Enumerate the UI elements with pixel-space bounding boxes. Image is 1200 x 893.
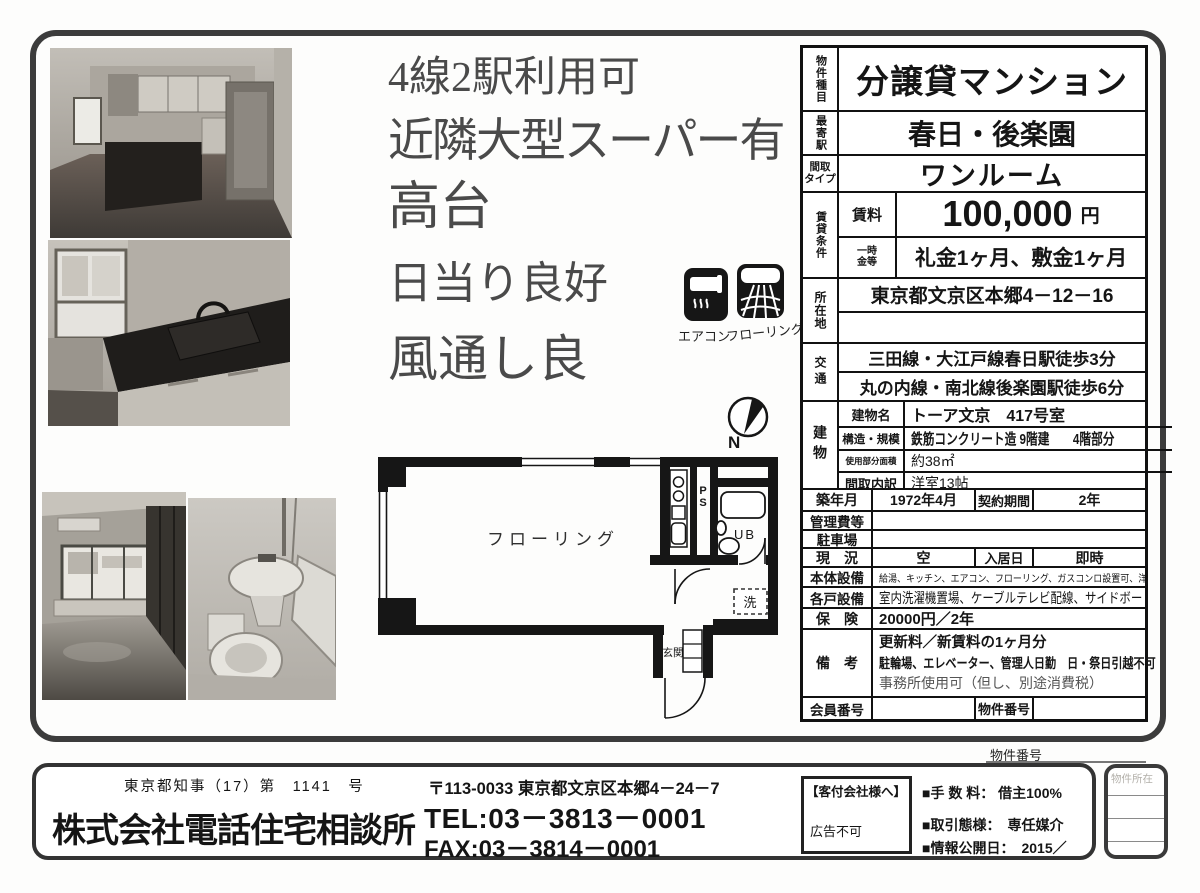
member-no-label: 会員番号	[810, 699, 864, 719]
row-location: 所在地 東京都文京区本郷4－12－16	[803, 279, 1145, 344]
row-property-type: 物件種目 分譲貸マンション	[803, 48, 1145, 112]
member-no-value	[873, 698, 976, 719]
floorplan: N フローリング P S UB 洗 玄関	[372, 392, 790, 722]
location-value: 東京都文京区本郷4－12－16	[839, 279, 1145, 313]
unit-equipment-value: 室内洗濯機置場、ケーブルテレビ配線、サイドボード	[879, 588, 1145, 607]
floor-area-value: 約38㎡	[911, 451, 955, 471]
license-number: 東京都知事（17）第 1141 号	[124, 775, 365, 796]
structure-label: 構造・規模	[842, 431, 900, 447]
row-access: 交通 三田線・大江戸線春日駅徒歩3分 丸の内線・南北線後楽園駅徒歩6分	[803, 344, 1145, 402]
row-rental-terms: 賃貸条件 賃料 100,000 円 一時 金等 礼金1ヶ月、敷金1ヶ月	[803, 193, 1145, 279]
property-no-label: 物件番号	[978, 699, 1030, 718]
row-insurance: 保 険 20000円／2年	[803, 609, 1145, 630]
agent-notice-box: 【客付会社様へ】 広告不可	[801, 776, 912, 854]
floor-area-label: 使用部分面積	[845, 455, 896, 467]
parking-label: 駐車場	[817, 529, 858, 549]
property-location-stamp-box: 物件所在	[1104, 764, 1168, 859]
property-type-value: 分譲貸マンション	[839, 48, 1145, 110]
structure-value: 鉄筋コンクリート造 9階建 4階部分	[911, 428, 1114, 449]
floorplan-ps-label-2: S	[699, 497, 706, 509]
notes-line-3: 事務所使用可（但し、別途消費税）	[879, 673, 1200, 693]
row-unit-equipment: 各戸設備 室内洗濯機置場、ケーブルテレビ配線、サイドボード	[803, 588, 1145, 609]
agent-box-note: 広告不可	[810, 821, 862, 840]
notes-line-2: 駐輪場、エレベーター、管理人日勤 日・祭日引越不可	[879, 654, 1156, 674]
fee-note: ■手 数 料： 借主100%	[922, 783, 1062, 803]
catch-line-3: 高台	[388, 182, 492, 234]
rent-value: 100,000	[942, 193, 1072, 235]
nearest-station-label: 最寄駅	[815, 115, 826, 151]
management-fee-label: 管理費等	[810, 511, 864, 531]
photo-room-kitchen	[50, 48, 292, 238]
photo-kitchen-sink	[48, 240, 290, 426]
row-notes: 備 考 更新料／新賃料の1ヶ月分 駐輪場、エレベーター、管理人日勤 日・祭日引越…	[803, 630, 1145, 698]
photo-bathroom	[188, 498, 336, 700]
access-line-1: 三田線・大江戸線春日駅徒歩3分	[839, 344, 1145, 373]
notes-line-1: 更新料／新賃料の1ヶ月分	[879, 633, 1200, 654]
publish-date: ■情報公開日： 2015／	[922, 838, 1067, 858]
layout-type-label-1: 間取	[810, 162, 831, 174]
built-date-label: 築年月	[816, 490, 858, 510]
floorplan-washer-label: 洗	[743, 595, 756, 610]
floorplan-entrance-label: 玄関	[663, 646, 684, 659]
contract-term-label: 契約期間	[978, 491, 1030, 510]
parking-value	[873, 531, 1145, 547]
floorplan-room-label: フローリング	[487, 530, 619, 549]
compass-n-label: N	[728, 433, 740, 452]
company-address: 〒113-0033 東京都文京区本郷4－24－7	[428, 775, 720, 799]
catch-line-2: 近隣大型スーパー有	[388, 118, 784, 164]
main-equipment-label: 本体設備	[810, 567, 864, 587]
row-status: 現 況 空 入居日 即時	[803, 549, 1145, 568]
status-label: 現 況	[816, 548, 858, 568]
photo-room-window	[42, 492, 186, 700]
management-fee-value	[873, 512, 1145, 529]
agent-box-title: 【客付会社様へ】	[806, 781, 906, 800]
floorplan-ps-label: P	[699, 485, 706, 497]
deposit-label-1: 一時	[857, 246, 877, 258]
nearest-station-value: 春日・後楽園	[839, 112, 1145, 154]
movein-value: 即時	[1034, 549, 1145, 566]
row-layout-type: 間取 タイプ ワンルーム	[803, 156, 1145, 193]
layout-type-label-2: タイプ	[804, 174, 836, 186]
row-main-equipment: 本体設備 給湯、キッチン、エアコン、フローリング、ガスコンロ設置可、洋服ダンス	[803, 568, 1145, 588]
building-name-label: 建物名	[851, 405, 890, 424]
side-box-row	[1108, 795, 1164, 818]
transaction-type: ■取引態様： 専任媒介	[922, 815, 1063, 835]
rent-unit: 円	[1081, 201, 1100, 228]
layout-type-value: ワンルーム	[839, 156, 1145, 191]
built-date-value: 1972年4月	[873, 490, 976, 510]
catch-line-4: 日当り良好	[388, 262, 608, 306]
row-parking: 駐車場	[803, 531, 1145, 549]
side-box-row	[1108, 818, 1164, 841]
access-line-2: 丸の内線・南北線後楽園駅徒歩6分	[839, 373, 1145, 400]
deposit-label-2: 金等	[857, 257, 877, 269]
insurance-value: 20000円／2年	[873, 609, 1145, 628]
building-name-value: トーア文京 417号室	[911, 402, 1065, 426]
floorplan-ub-label: UB	[734, 527, 756, 542]
status-value: 空	[873, 549, 976, 566]
notes-label: 備 考	[816, 653, 858, 673]
flooring-icon	[737, 264, 784, 320]
flyer-sheet: 4線2駅利用可 近隣大型スーパー有 高台 日当り良好 風通し良 エアコン フロー…	[0, 0, 1200, 893]
aircon-icon	[684, 268, 728, 323]
row-built-date: 築年月 1972年4月 契約期間 2年	[803, 490, 1145, 512]
side-box-label: 物件所在	[1108, 768, 1164, 795]
main-equipment-value: 給湯、キッチン、エアコン、フローリング、ガスコンロ設置可、洋服ダンス	[879, 570, 1145, 585]
row-nearest-station: 最寄駅 春日・後楽園	[803, 112, 1145, 156]
building-label: 建物	[813, 425, 827, 465]
access-label: 交通	[814, 356, 826, 388]
contract-term-value: 2年	[1034, 490, 1145, 510]
company-name: 株式会社電話住宅相談所	[52, 803, 415, 852]
row-building: 建物 建物名 トーア文京 417号室 構造・規模 鉄筋コンクリート造 9階建 4…	[803, 402, 1145, 490]
row-numbers: 会員番号 物件番号	[803, 698, 1145, 719]
rent-label: 賃料	[852, 204, 882, 225]
footer-band: 東京都知事（17）第 1141 号 株式会社電話住宅相談所 〒113-0033 …	[32, 763, 1096, 860]
location-label: 所在地	[814, 291, 826, 330]
property-table: 物件種目 分譲貸マンション 最寄駅 春日・後楽園 間取 タイプ ワンルーム 賃貸…	[800, 45, 1148, 722]
fax-number: FAX:03－3814－0001	[424, 829, 660, 864]
unit-equipment-label: 各戸設備	[810, 588, 864, 608]
deposit-value: 礼金1ヶ月、敷金1ヶ月	[897, 238, 1145, 277]
location-value-2	[839, 313, 1145, 342]
rental-terms-label: 賃貸条件	[815, 211, 826, 259]
property-type-label: 物件種目	[815, 55, 826, 103]
side-box-row	[1108, 841, 1164, 864]
movein-label: 入居日	[984, 548, 1023, 567]
catch-line-5: 風通し良	[388, 334, 588, 384]
aircon-icon-label: エアコン	[678, 326, 730, 345]
property-no-value	[1034, 698, 1145, 719]
catch-line-1: 4線2駅利用可	[388, 57, 640, 99]
compass-icon: N	[728, 398, 767, 452]
insurance-label: 保 険	[816, 609, 858, 629]
